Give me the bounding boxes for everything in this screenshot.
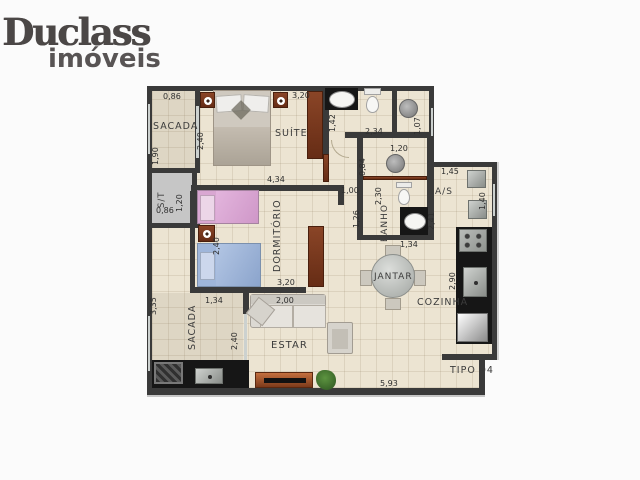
logo: Duclass imóveis	[2, 14, 161, 72]
unit-label-tipo-04: TIPO 04	[450, 366, 494, 376]
dimension-label-1-26: 1,26	[353, 210, 361, 228]
logo-tagline-text: imóveis	[48, 46, 161, 72]
dimension-label-1-34: 1,34	[400, 241, 418, 249]
dimension-label-1-42: 1,42	[329, 114, 337, 132]
dimension-label-1-00: 1,00	[341, 187, 359, 195]
dimension-label-2-00: 2,00	[276, 297, 294, 305]
dimension-label-4-34: 4,34	[267, 176, 285, 184]
dimension-label-1-45: 1,45	[441, 168, 459, 176]
room-label-dormit-rio: DORMITÓRIO	[273, 199, 283, 272]
dimension-label-1-20: 1,20	[176, 194, 184, 212]
room-label-sacada: SACADA	[188, 305, 198, 350]
dimension-label-2-30: 2,30	[375, 187, 383, 205]
dimension-label-2-34: 2,34	[365, 128, 383, 136]
screenshot-canvas: Duclass imóveis	[0, 0, 640, 480]
dimension-label-0-84: 0,84	[359, 158, 367, 176]
floor-plan: SACADASUÍTES/TDORMITÓRIOBANHOA/SJANTARCO…	[147, 86, 497, 395]
dimension-label-2-90: 2,90	[449, 272, 457, 290]
dimension-label-0-86: 0,86	[163, 93, 181, 101]
dimension-label-0-86: 0,86	[156, 207, 174, 215]
room-label-estar: ESTAR	[271, 341, 308, 351]
room-label-jantar: JANTAR	[374, 273, 413, 282]
dimension-label-1-34: 1,34	[205, 297, 223, 305]
dimension-label-1-90: 1,90	[152, 147, 160, 165]
dimension-label-1-20: 1,20	[390, 145, 408, 153]
dimension-label-1-07: 1,07	[414, 117, 422, 135]
room-label-cozinha: COZINHA	[417, 298, 468, 308]
dimension-label-3-20: 3,20	[277, 279, 295, 287]
dimension-label-5-93: 5,93	[380, 380, 398, 388]
dimension-label-2-40: 2,40	[213, 237, 221, 255]
dimension-label-3-35: 3,35	[150, 297, 158, 315]
dimension-label-2-40: 2,40	[231, 332, 239, 350]
dimension-label-3-20: 3,20	[292, 92, 310, 100]
labels-layer: SACADASUÍTES/TDORMITÓRIOBANHOA/SJANTARCO…	[147, 86, 497, 395]
room-label-a-s: A/S	[435, 188, 453, 197]
room-label-sacada: SACADA	[153, 122, 198, 132]
room-label-su-te: SUÍTE	[275, 129, 308, 139]
dimension-label-1-40: 1,40	[479, 192, 487, 210]
dimension-label-2-41: 2,41	[428, 212, 436, 230]
dimension-label-2-40: 2,40	[197, 132, 205, 150]
room-label-banho: BANHO	[381, 204, 390, 242]
